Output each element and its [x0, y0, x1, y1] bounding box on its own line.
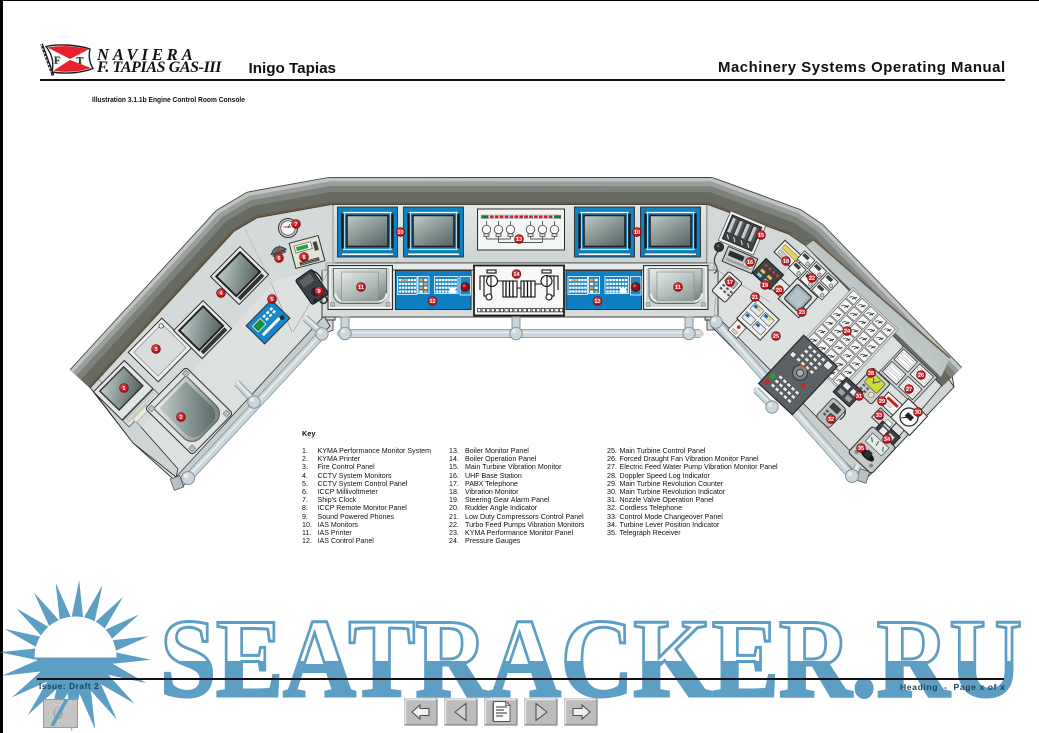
- svg-text:18: 18: [783, 259, 789, 265]
- svg-text:1: 1: [122, 386, 125, 392]
- svg-text:19: 19: [762, 283, 768, 289]
- svg-text:33: 33: [876, 413, 882, 419]
- svg-text:10: 10: [397, 230, 403, 236]
- svg-text:28: 28: [868, 371, 874, 377]
- svg-text:8: 8: [302, 255, 305, 261]
- svg-text:31: 31: [856, 394, 862, 400]
- svg-text:15: 15: [758, 233, 764, 239]
- svg-text:23: 23: [799, 310, 805, 316]
- svg-text:25: 25: [773, 334, 779, 340]
- svg-text:34: 34: [884, 437, 891, 443]
- svg-text:20: 20: [776, 288, 782, 294]
- svg-text:16: 16: [747, 260, 753, 266]
- svg-text:12: 12: [594, 299, 600, 305]
- svg-text:13: 13: [516, 237, 522, 243]
- svg-text:5: 5: [270, 297, 273, 303]
- svg-text:9: 9: [317, 289, 320, 295]
- svg-text:27: 27: [906, 387, 912, 393]
- svg-text:21: 21: [752, 295, 758, 301]
- svg-text:26: 26: [918, 373, 924, 379]
- svg-text:11: 11: [358, 285, 364, 291]
- svg-text:22: 22: [809, 276, 815, 282]
- svg-text:10: 10: [634, 230, 640, 236]
- svg-text:7: 7: [294, 222, 297, 228]
- svg-text:30: 30: [915, 410, 921, 416]
- svg-text:12: 12: [429, 299, 435, 305]
- svg-text:24: 24: [844, 329, 851, 335]
- svg-text:3: 3: [154, 347, 157, 353]
- svg-text:29: 29: [879, 399, 885, 405]
- svg-text:6: 6: [277, 256, 280, 262]
- svg-text:32: 32: [828, 417, 834, 423]
- svg-text:11: 11: [675, 285, 681, 291]
- svg-text:35: 35: [858, 446, 864, 452]
- svg-text:14: 14: [513, 272, 520, 278]
- svg-text:17: 17: [727, 280, 733, 286]
- svg-text:2: 2: [179, 415, 182, 421]
